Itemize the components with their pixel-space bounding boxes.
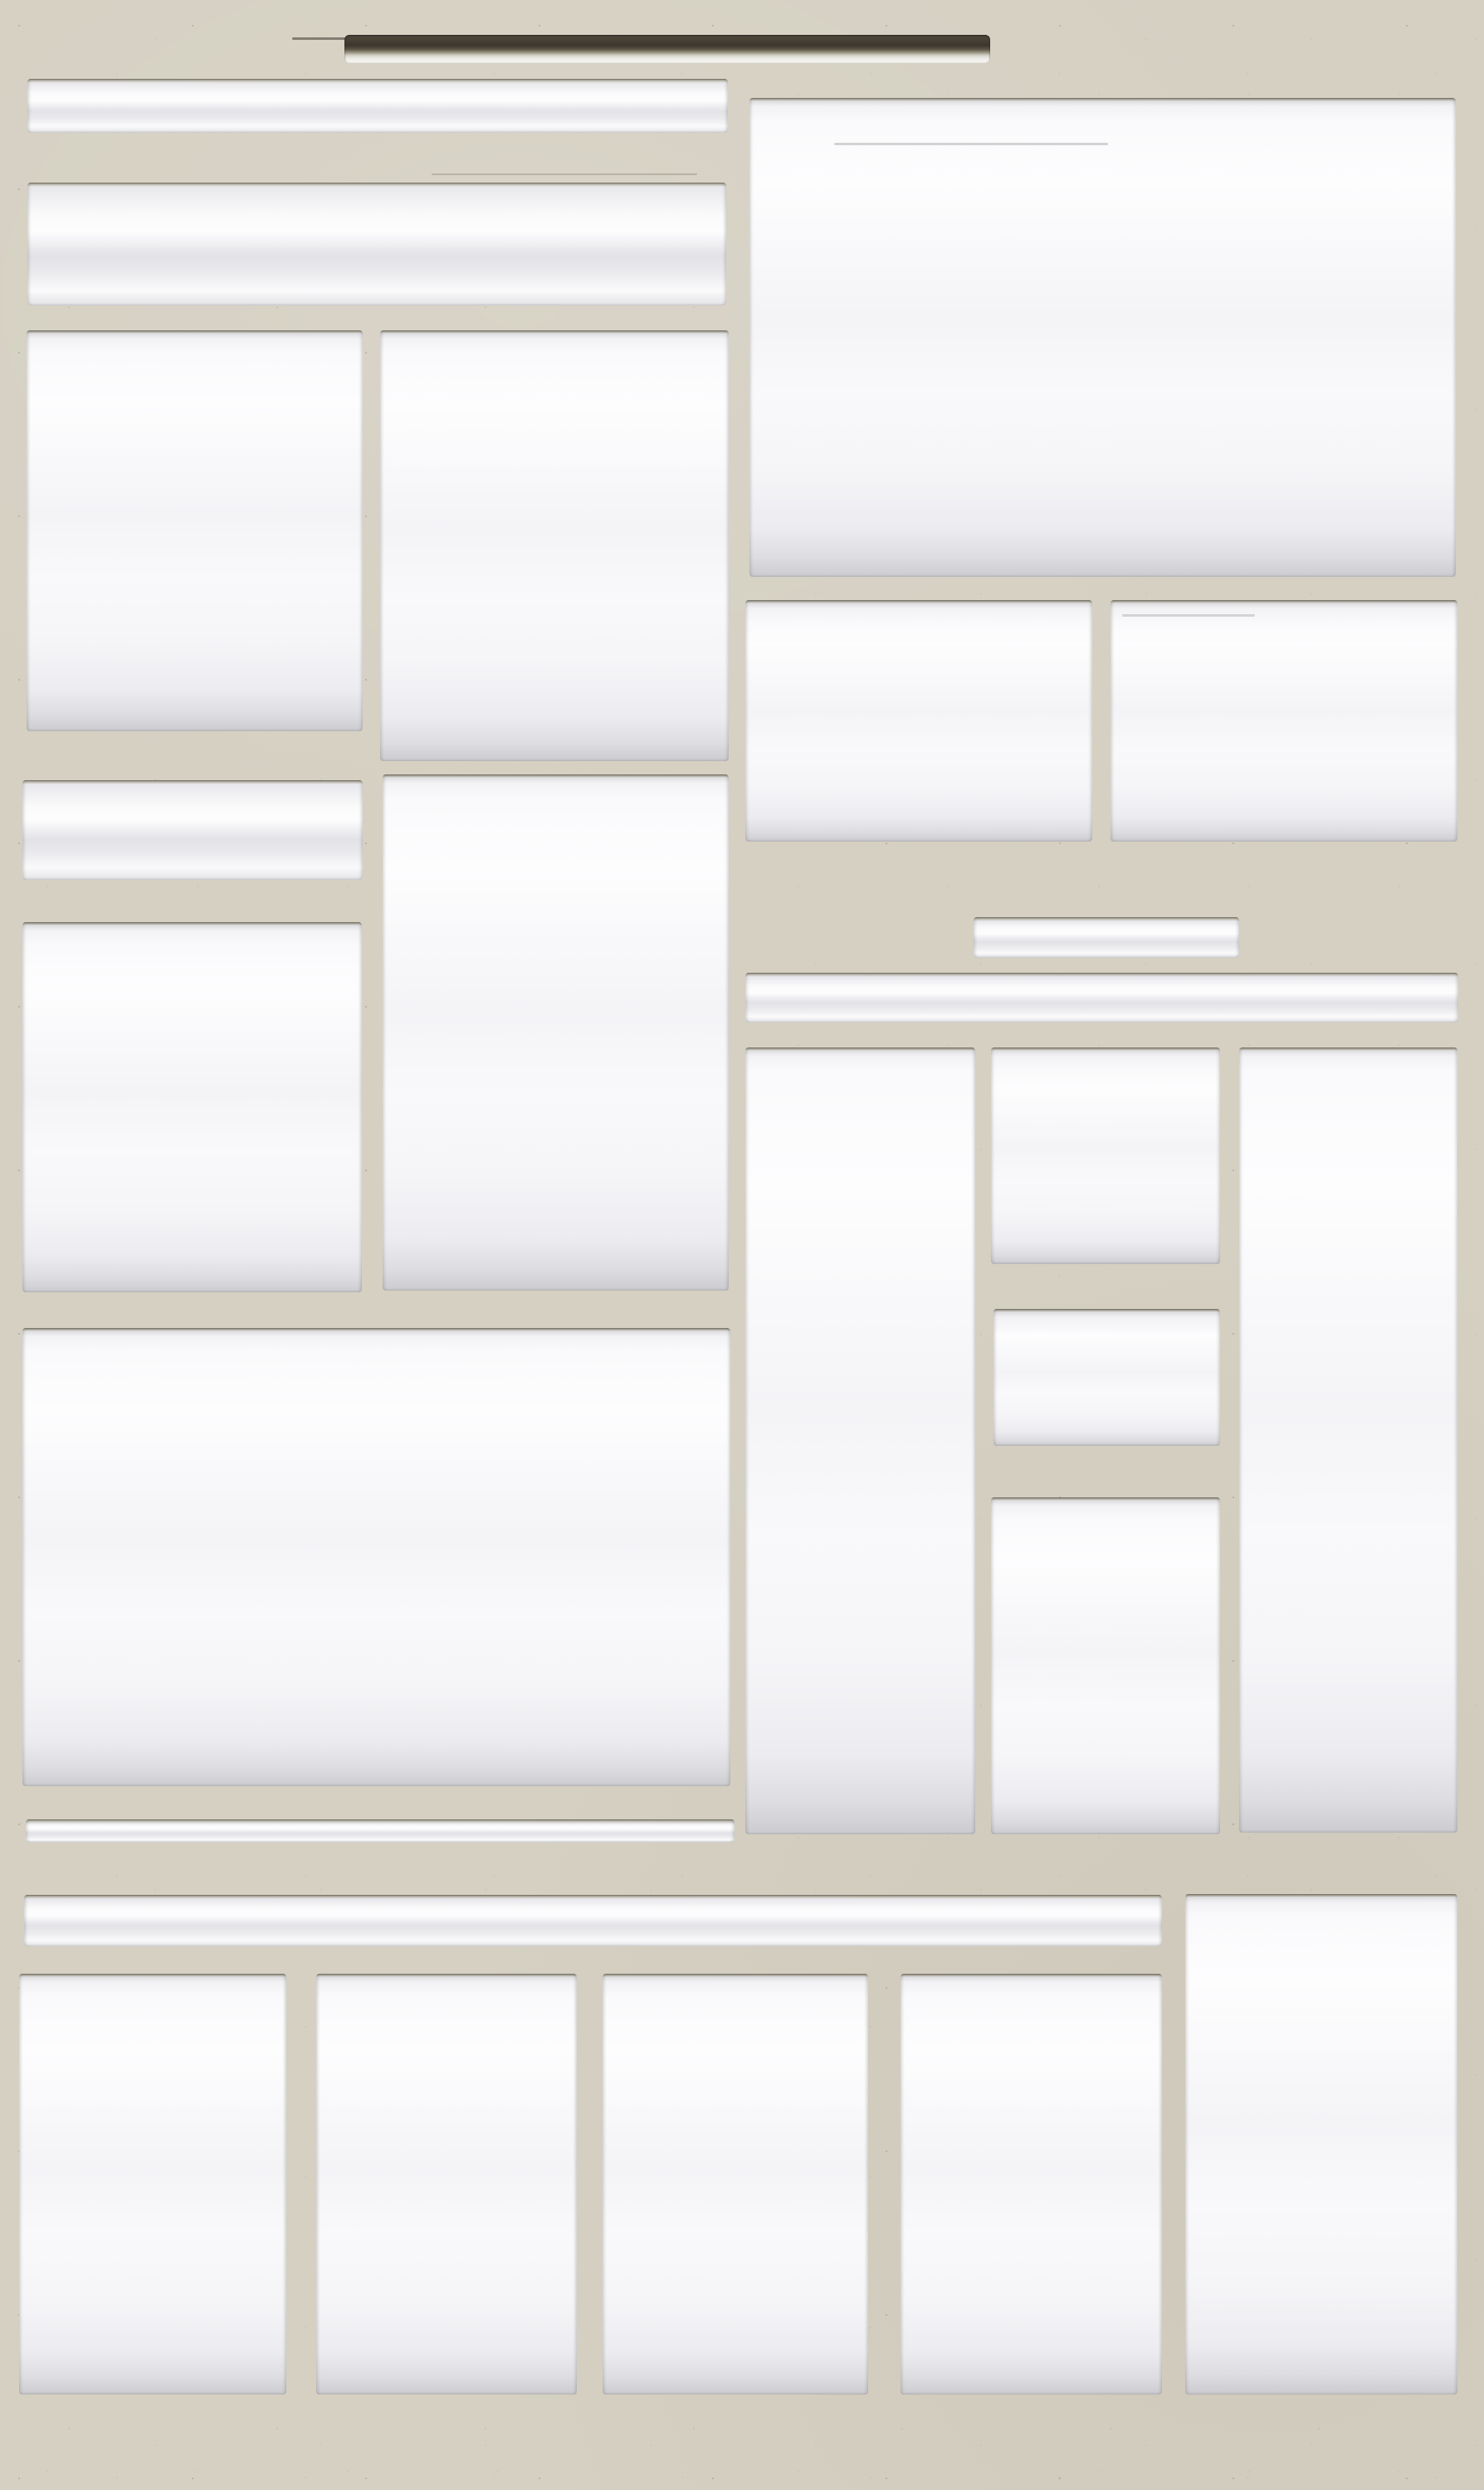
aperture-big-left-rect xyxy=(22,1328,730,1786)
aperture-bottom-rect-1 xyxy=(19,1974,286,2395)
aperture-mid-right-right xyxy=(1111,600,1457,842)
artifact-scratch-left-of-top-slot xyxy=(292,37,345,40)
aperture-right-col-1 xyxy=(745,1047,975,1834)
aperture-long-strip-bottom xyxy=(24,1895,1162,1946)
aperture-left-square-row3 xyxy=(27,330,363,731)
cardboard-sheet xyxy=(0,0,1484,2490)
aperture-bottom-rect-5 xyxy=(1185,1894,1457,2395)
aperture-right-col2-bottom xyxy=(991,1497,1220,1834)
aperture-left-strip-1 xyxy=(27,79,728,133)
aperture-mid-right-left xyxy=(745,600,1092,842)
aperture-right-col2-top xyxy=(991,1047,1220,1264)
artifact-paper-wrinkle-mid-right-top xyxy=(1122,614,1255,617)
aperture-bottom-rect-4 xyxy=(901,1974,1162,2395)
aperture-top-slot xyxy=(344,35,990,63)
aperture-big-right-rect xyxy=(749,98,1456,577)
aperture-small-slot-right xyxy=(974,917,1239,958)
aperture-right-square-row3 xyxy=(380,330,729,761)
aperture-tall-rect-row4 xyxy=(383,774,729,1291)
aperture-thin-strip-left xyxy=(26,1819,735,1843)
artifact-hairline-above-left-bar xyxy=(432,173,697,175)
aperture-bottom-rect-3 xyxy=(603,1974,868,2395)
aperture-right-col2-middle xyxy=(993,1309,1220,1446)
aperture-right-strip xyxy=(745,973,1458,1023)
aperture-bottom-rect-2 xyxy=(316,1974,577,2395)
artifact-paper-wrinkle-big-right-top xyxy=(834,143,1108,145)
aperture-right-col-3 xyxy=(1239,1047,1457,1833)
aperture-left-strip-row4 xyxy=(22,780,363,880)
aperture-left-bar-2 xyxy=(27,183,726,305)
aperture-left-square-row5 xyxy=(22,922,362,1292)
